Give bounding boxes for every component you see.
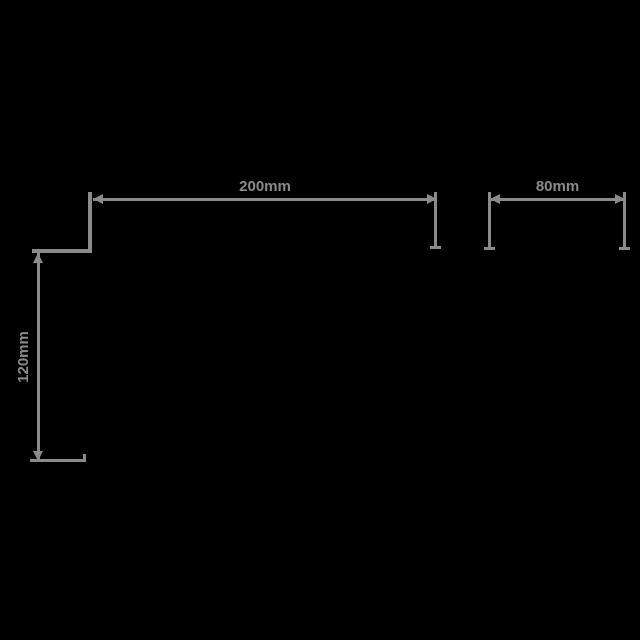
dimension-left-height-line bbox=[37, 253, 40, 461]
extension-tick-top-right bbox=[430, 246, 441, 249]
extension-line-top-left bbox=[88, 192, 92, 253]
dimension-drawing: 200mm 80mm 120mm bbox=[0, 0, 640, 640]
extension-tick-right-dim-right bbox=[619, 247, 630, 250]
extension-tick-height-bottom bbox=[83, 454, 86, 462]
extension-line-right-dim-left bbox=[488, 192, 491, 250]
arrowhead-up-icon bbox=[33, 253, 43, 263]
dimension-right-width-label: 80mm bbox=[490, 179, 625, 195]
extension-line-top-right bbox=[434, 192, 437, 249]
extension-line-height-bottom bbox=[30, 459, 86, 462]
arrowhead-left-icon bbox=[490, 194, 500, 204]
extension-line-right-dim-right bbox=[623, 192, 626, 250]
arrowhead-left-icon bbox=[93, 194, 103, 204]
dimension-right-width-line bbox=[490, 198, 625, 201]
extension-line-height-top bbox=[32, 249, 92, 253]
dimension-left-height-label: 120mm bbox=[16, 287, 32, 427]
extension-tick-right-dim-left bbox=[484, 247, 495, 250]
dimension-top-width-label: 200mm bbox=[93, 179, 437, 195]
dimension-top-width-line bbox=[93, 198, 437, 201]
